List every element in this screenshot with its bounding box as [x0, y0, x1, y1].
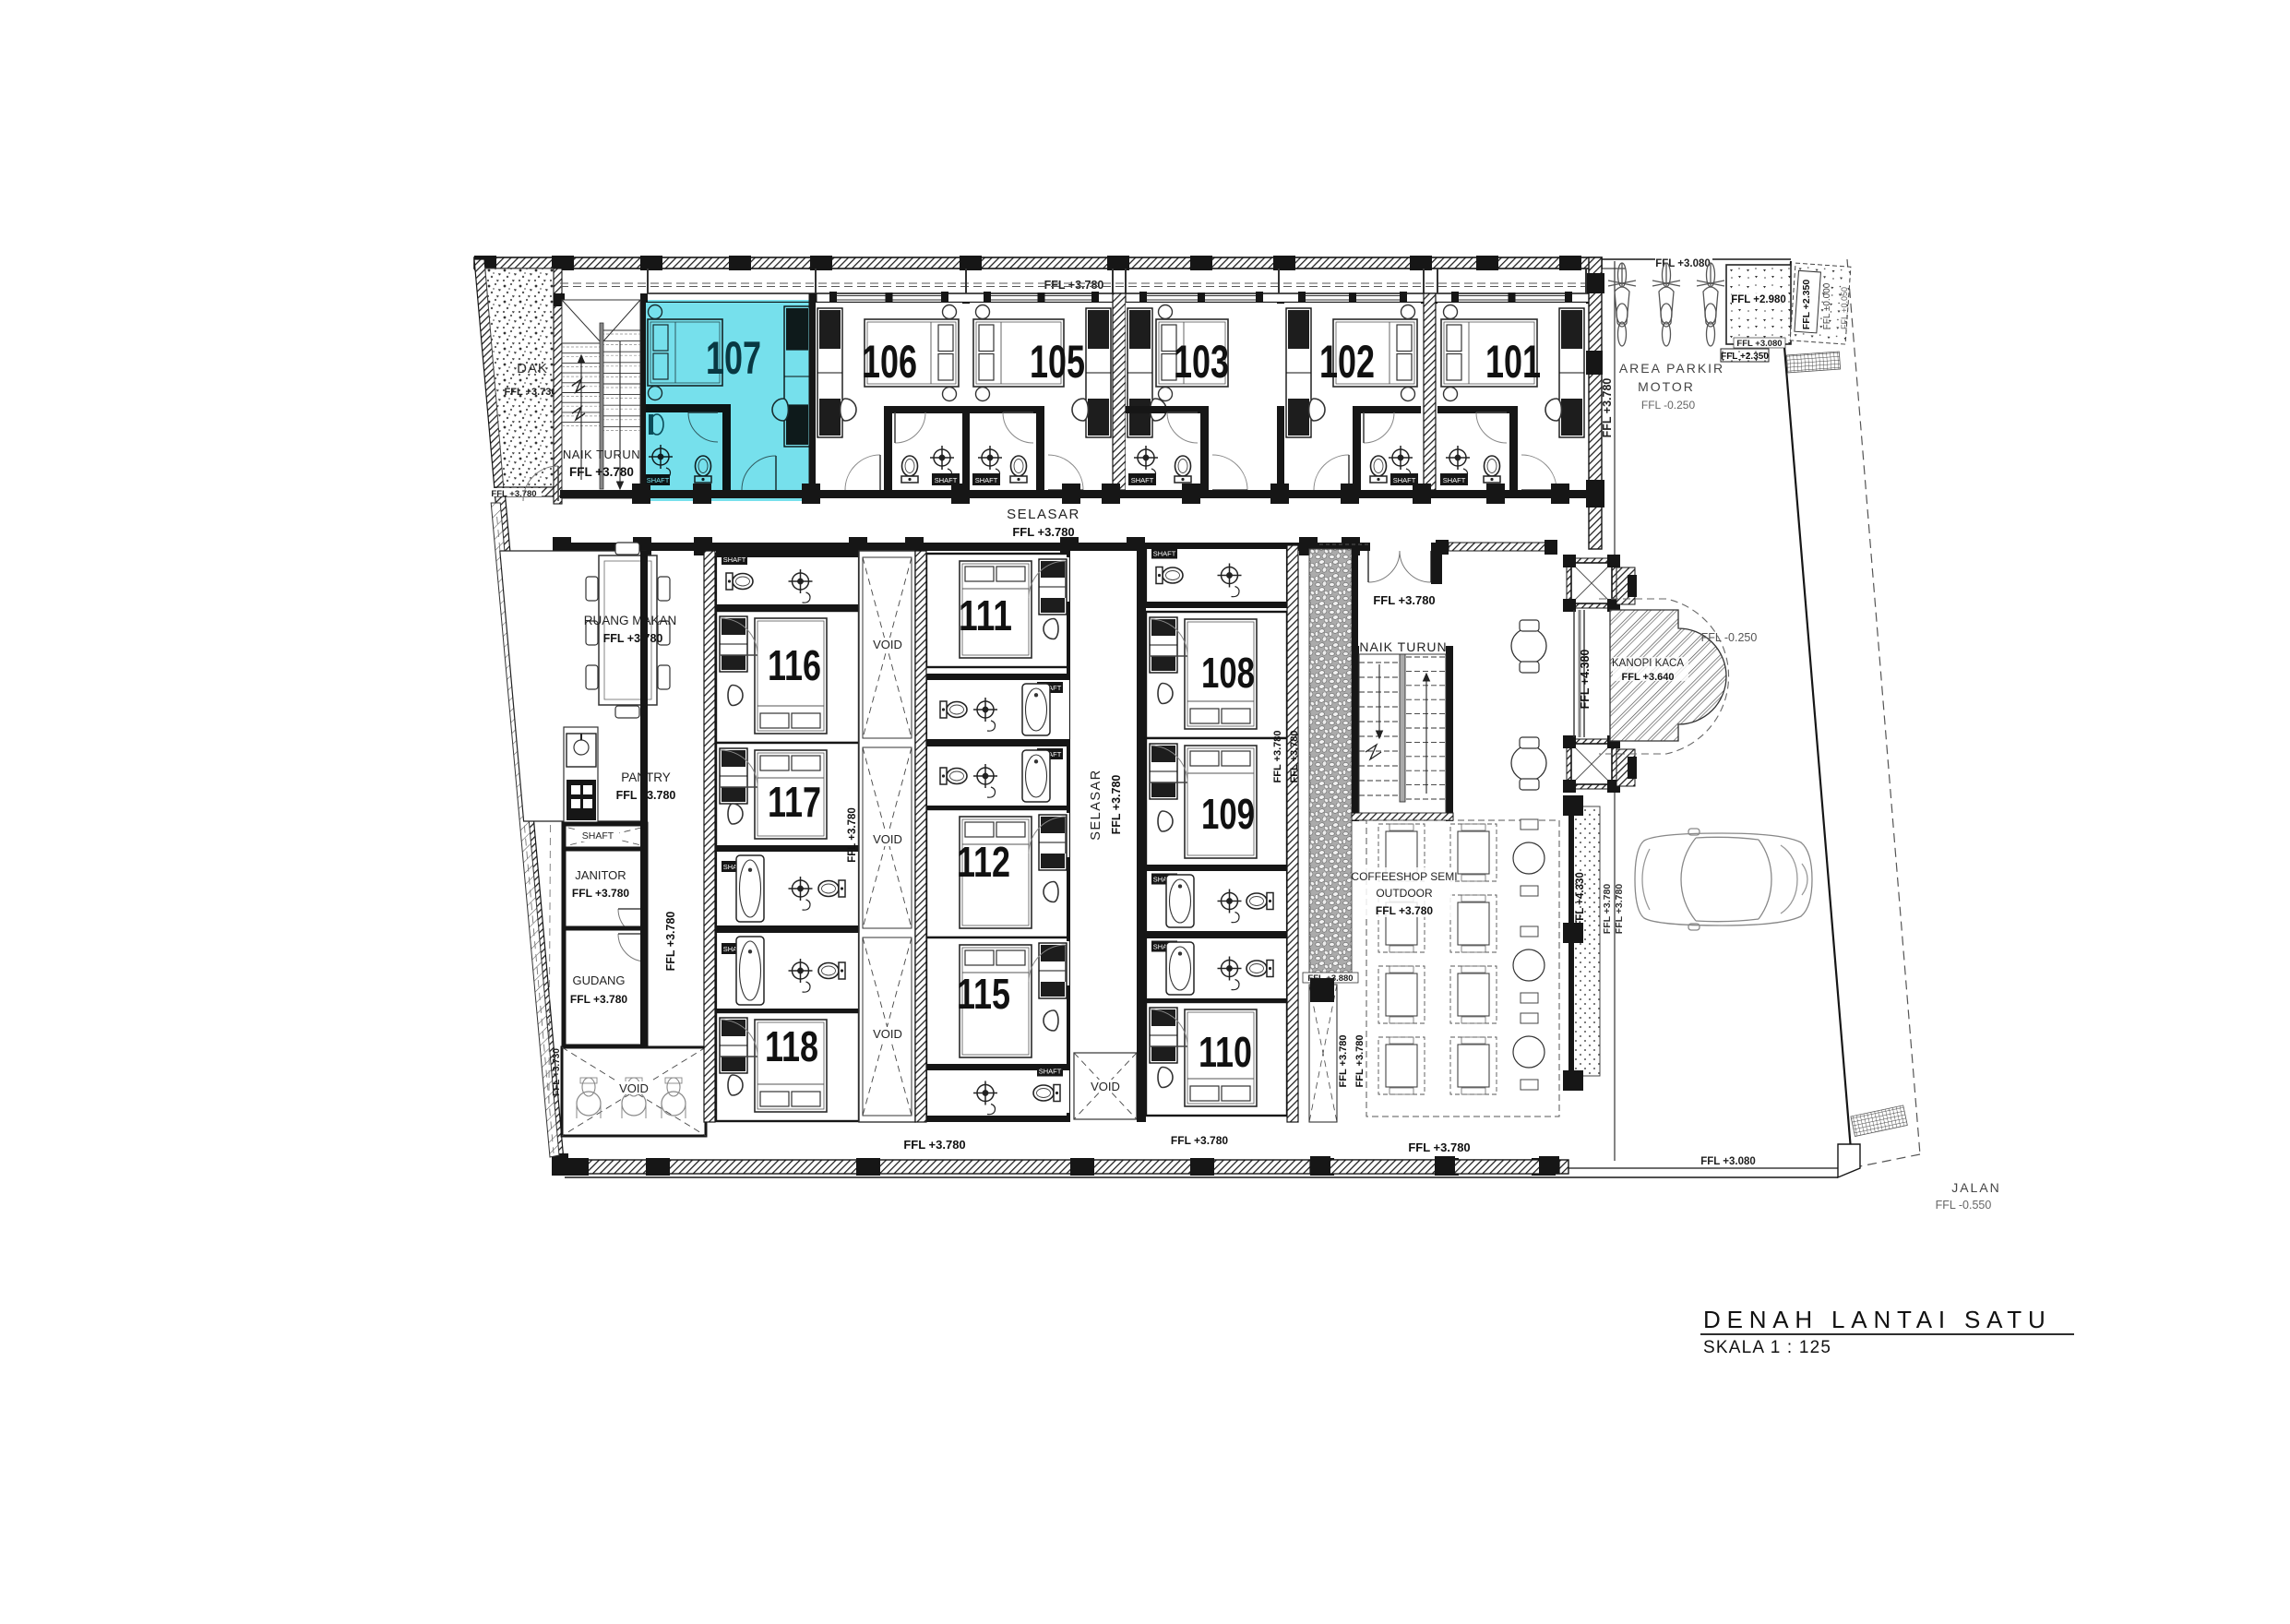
svg-text:FFL +3.780: FFL +3.780: [1373, 593, 1435, 607]
svg-text:FFL +3.780: FFL +3.780: [491, 489, 536, 499]
svg-text:DENAH LANTAI SATU: DENAH LANTAI SATU: [1703, 1306, 2052, 1333]
svg-text:GUDANG: GUDANG: [572, 973, 625, 987]
svg-text:FFL +3.730: FFL +3.730: [552, 1048, 562, 1096]
svg-text:FFL +3.780: FFL +3.780: [1012, 525, 1074, 539]
svg-text:VOID: VOID: [619, 1081, 649, 1095]
svg-text:FFL +3.780: FFL +3.780: [570, 993, 627, 1006]
svg-text:KANOPI KACA: KANOPI KACA: [1612, 658, 1684, 669]
svg-text:106: 106: [862, 336, 917, 388]
svg-text:109: 109: [1201, 790, 1255, 838]
svg-text:FFL +3.780: FFL +3.780: [1354, 1035, 1366, 1088]
svg-text:FFL +3.780: FFL +3.780: [569, 465, 634, 479]
svg-text:SHAFT: SHAFT: [1153, 549, 1176, 557]
svg-text:VOID: VOID: [1091, 1080, 1120, 1093]
svg-text:OUTDOOR: OUTDOOR: [1376, 887, 1433, 900]
svg-text:JALAN: JALAN: [1951, 1180, 2001, 1195]
svg-text:VOID: VOID: [873, 832, 902, 846]
svg-text:FFL +3.780: FFL +3.780: [1601, 378, 1614, 438]
svg-text:FFL +3.780: FFL +3.780: [1408, 1140, 1470, 1154]
svg-text:NAIK TURUN: NAIK TURUN: [563, 448, 640, 461]
svg-text:JANITOR: JANITOR: [575, 868, 626, 882]
svg-text:FFL +2.980: FFL +2.980: [1731, 294, 1786, 305]
svg-text:FFL +4.330: FFL +4.330: [1575, 872, 1586, 927]
svg-text:SHAFT: SHAFT: [1039, 1067, 1062, 1075]
svg-text:FFL +3.780: FFL +3.780: [903, 1138, 965, 1152]
svg-text:FFL +2.350: FFL +2.350: [1801, 280, 1812, 330]
svg-text:FFL +3.780: FFL +3.780: [1110, 775, 1123, 835]
svg-text:DAK: DAK: [517, 361, 548, 376]
svg-text:NAIK TURUN: NAIK TURUN: [1359, 639, 1447, 654]
svg-text:103: 103: [1174, 336, 1229, 388]
svg-text:FFL +3.780: FFL +3.780: [1272, 731, 1283, 783]
svg-text:FFL +3.780: FFL +3.780: [1602, 884, 1613, 935]
svg-text:SHAFT: SHAFT: [1131, 476, 1154, 484]
svg-text:101: 101: [1485, 336, 1541, 388]
svg-text:117: 117: [768, 778, 821, 826]
svg-text:COFFEESHOP SEMI: COFFEESHOP SEMI: [1351, 870, 1457, 883]
svg-text:SHAFT: SHAFT: [1393, 476, 1416, 484]
svg-text:115: 115: [957, 970, 1010, 1018]
svg-text:AREA PARKIR: AREA PARKIR: [1619, 361, 1724, 376]
svg-text:SHAFT: SHAFT: [723, 555, 746, 564]
svg-text:SELASAR: SELASAR: [1089, 769, 1103, 840]
svg-text:FFL +3.080: FFL +3.080: [1655, 258, 1711, 269]
svg-text:FFL +3.780: FFL +3.780: [1289, 731, 1300, 783]
svg-text:VOID: VOID: [873, 1027, 902, 1041]
svg-text:FFL +3.780: FFL +3.780: [1044, 279, 1104, 292]
svg-text:FFL +3.780: FFL +3.780: [572, 887, 629, 900]
svg-text:110: 110: [1199, 1028, 1252, 1076]
svg-text:MOTOR: MOTOR: [1638, 379, 1695, 394]
svg-text:105: 105: [1030, 336, 1085, 388]
svg-text:118: 118: [765, 1022, 818, 1070]
svg-text:FFL +0.050: FFL +0.050: [1840, 287, 1849, 329]
svg-text:VOID: VOID: [873, 638, 902, 651]
svg-text:FFL +3.780: FFL +3.780: [1171, 1134, 1228, 1147]
svg-text:FFL +3.780: FFL +3.780: [603, 632, 663, 645]
svg-text:RUANG MAKAN: RUANG MAKAN: [584, 614, 677, 627]
svg-text:FFL -0.550: FFL -0.550: [1936, 1199, 1992, 1212]
svg-text:SHAFT: SHAFT: [975, 476, 998, 484]
svg-text:FFL +4.380: FFL +4.380: [1579, 650, 1592, 710]
svg-text:FFL +3.080: FFL +3.080: [1736, 339, 1782, 349]
svg-text:112: 112: [957, 838, 1010, 886]
svg-text:SKALA 1 : 125: SKALA 1 : 125: [1703, 1338, 1831, 1357]
svg-text:SELASAR: SELASAR: [1007, 507, 1080, 522]
svg-text:FFL +3.640: FFL +3.640: [1622, 672, 1675, 683]
svg-text:SHAFT: SHAFT: [582, 830, 614, 842]
svg-text:111: 111: [959, 591, 1012, 639]
svg-text:SHAFT: SHAFT: [1443, 476, 1466, 484]
svg-text:FFL +3.780: FFL +3.780: [664, 912, 677, 972]
svg-text:102: 102: [1319, 336, 1375, 388]
svg-text:FFL +3.080: FFL +3.080: [1700, 1156, 1756, 1167]
svg-text:FFL -0.250: FFL -0.250: [1701, 631, 1758, 644]
svg-text:FFL +3.780: FFL +3.780: [1376, 904, 1433, 917]
svg-text:116: 116: [768, 641, 821, 689]
svg-text:FFL -0.250: FFL -0.250: [1641, 399, 1696, 412]
svg-text:FFL +3.780: FFL +3.780: [1614, 884, 1625, 935]
svg-text:108: 108: [1201, 649, 1255, 697]
svg-text:FFL +3.780: FFL +3.780: [847, 807, 858, 863]
svg-text:SHAFT: SHAFT: [935, 476, 958, 484]
svg-text:FFL ±0.000: FFL ±0.000: [1822, 282, 1832, 329]
svg-text:FFL +3.730: FFL +3.730: [505, 387, 557, 398]
svg-text:FFL +3.780: FFL +3.780: [1338, 1035, 1349, 1088]
svg-text:FFL +2.350: FFL +2.350: [1721, 352, 1769, 362]
